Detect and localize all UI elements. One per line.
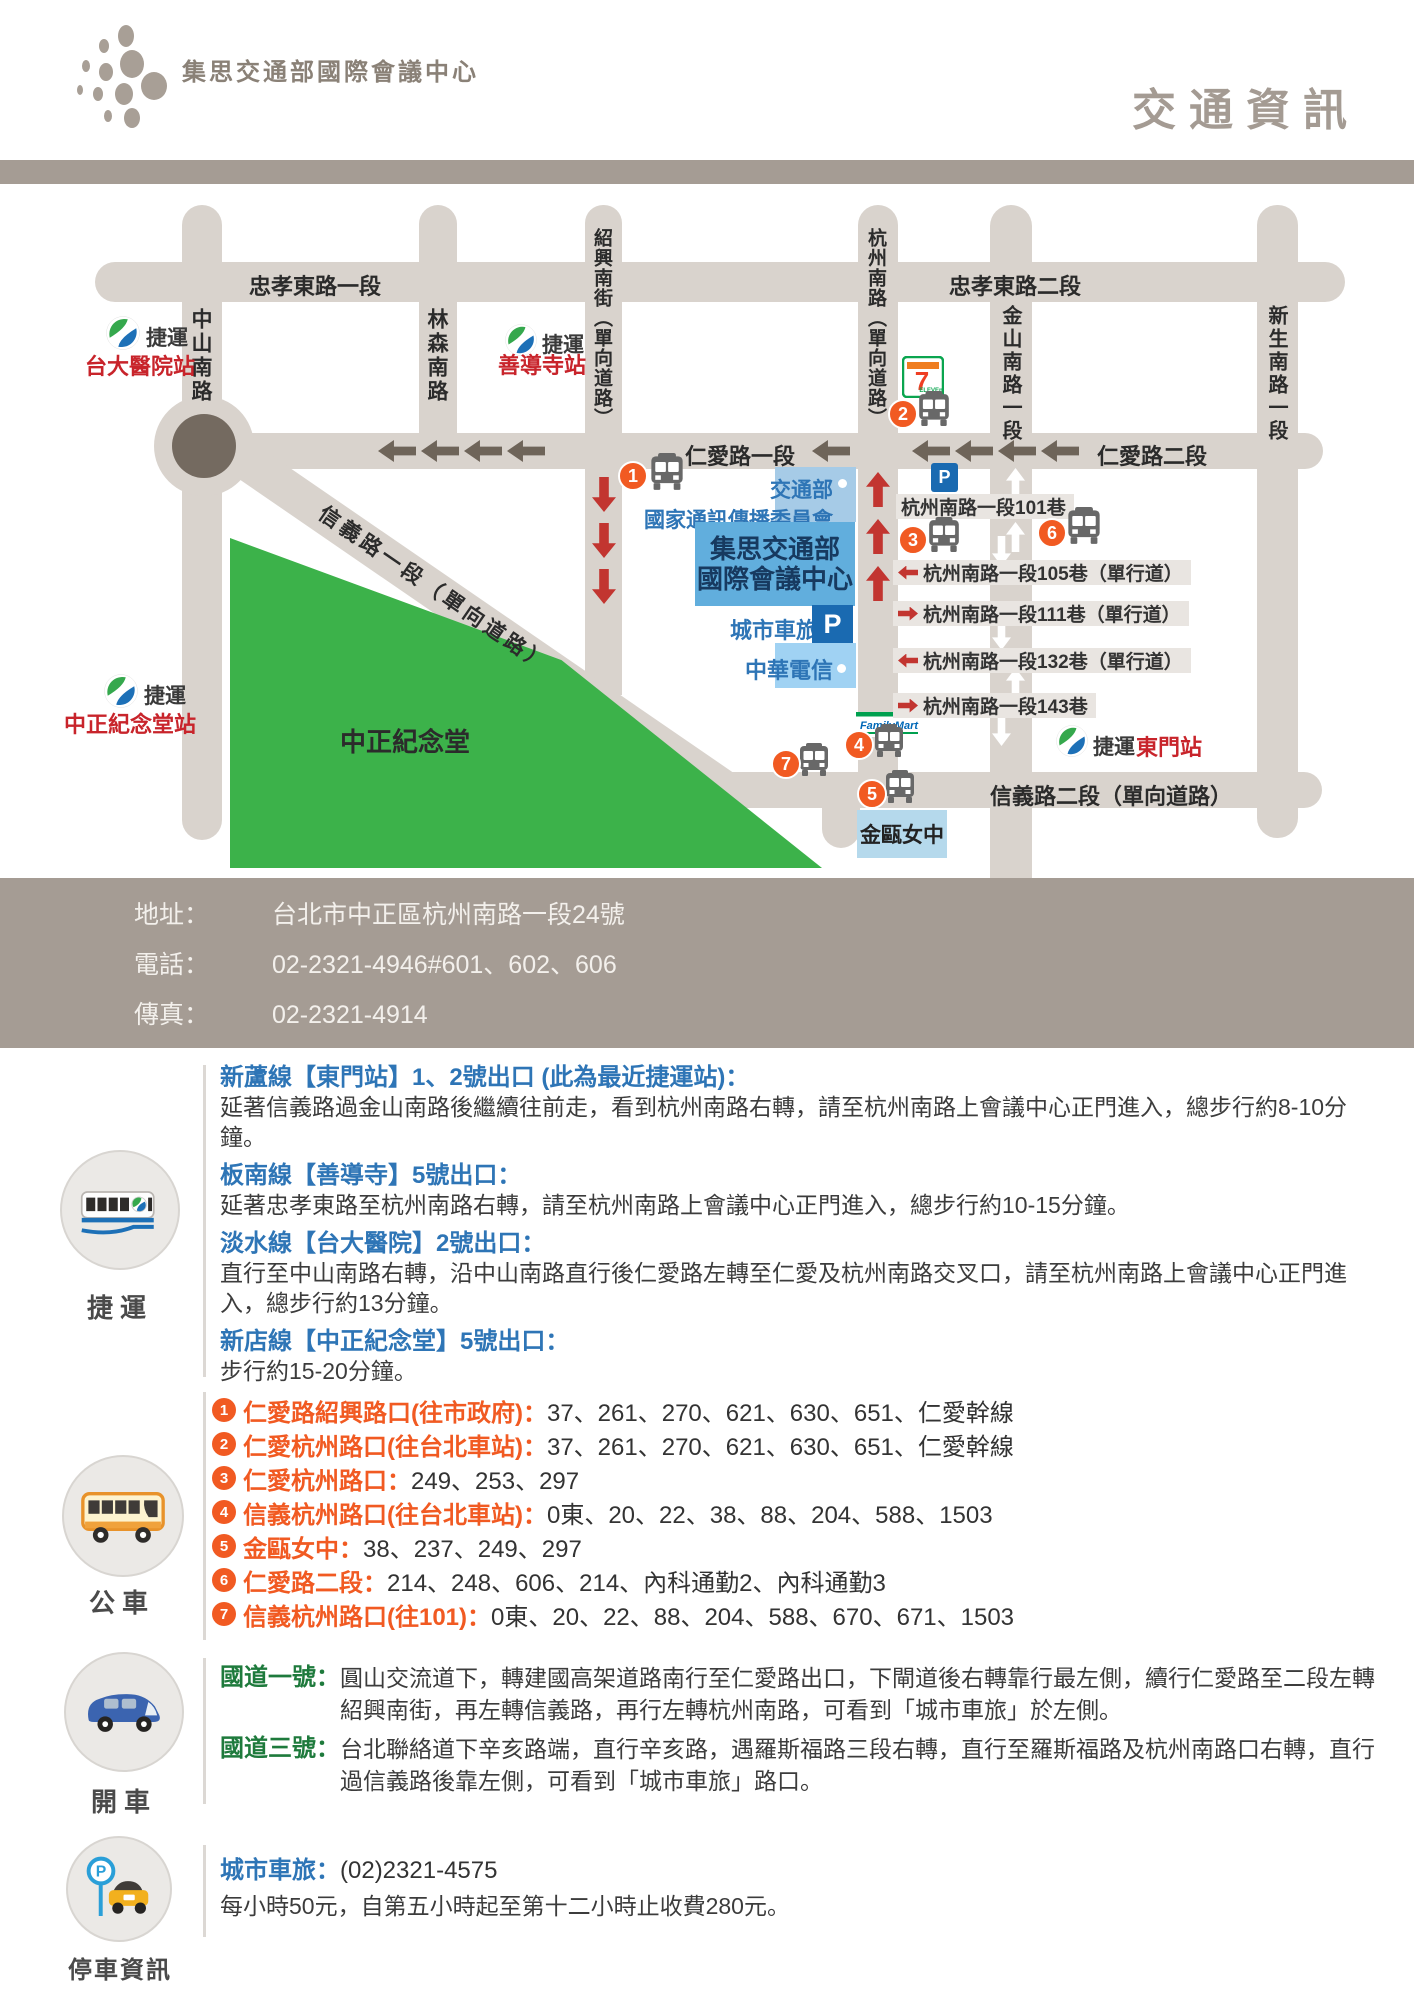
bus-section-icon	[62, 1455, 184, 1577]
yellow-bus-icon	[80, 1487, 166, 1545]
roundabout-center	[172, 414, 236, 478]
bus-route-lines: 0東、20、22、38、88、204、588、1503	[547, 1495, 993, 1530]
bus-stop-7-badge: 7	[771, 749, 801, 779]
bus-icon	[648, 453, 686, 491]
bus-stop-name: 仁愛路二段：	[243, 1563, 387, 1598]
parking-rate-info: 每小時50元，自第五小時起至第十二小時止收費280元。	[220, 1890, 1380, 1922]
bus-icon	[883, 770, 917, 804]
road-label-zhongxiao2: 忠孝東路二段	[905, 269, 1125, 301]
bus-icon	[916, 391, 952, 427]
bus-stop-number-badge: 6	[212, 1568, 236, 1592]
section-divider	[203, 1845, 206, 1937]
bus-route-lines: 249、253、297	[411, 1461, 579, 1496]
bus-stop-name: 仁愛杭州路口：	[243, 1461, 411, 1496]
bus-stop-3-badge: 3	[898, 525, 928, 555]
mrt-line-body: 直行至中山南路右轉，沿中山南路直行後仁愛路左轉至仁愛及杭州南路交叉口，請至杭州南…	[220, 1258, 1380, 1318]
left-arrow-icon	[898, 654, 918, 668]
bus-stop-1-badge: 1	[618, 461, 648, 491]
bus-route-row: 5 金甌女中： 38、237、249、297	[212, 1529, 1392, 1563]
road-label-xinyi2: 信義路二段（單向道路）	[990, 779, 1232, 811]
gis-center-block: 集思交通部 國際會議中心	[695, 522, 855, 606]
road-hangzhou-south	[822, 790, 860, 848]
metro-logo-icon	[106, 316, 140, 350]
contact-rows: 地址： 台北市中正區杭州南路一段24號 電話： 02-2321-4946#601…	[134, 890, 625, 1040]
lane-105-label: 杭州南路一段105巷（單行道）	[923, 559, 1183, 586]
bus-stop-number-badge: 1	[212, 1398, 236, 1422]
bus-route-row: 4 信義杭州路口(往台北車站)： 0東、20、22、38、88、204、588、…	[212, 1495, 1392, 1529]
lane-111-label: 杭州南路一段111巷（單行道）	[923, 600, 1181, 627]
bus-route-lines: 214、248、606、214、內科通勤2、內科通勤3	[387, 1563, 886, 1598]
drive-section-icon	[64, 1652, 184, 1772]
road-label-hangzhou: 杭州南路（單向道路）	[866, 228, 885, 428]
dongmen-metro: 捷運	[1093, 731, 1135, 761]
shandao-name: 善導寺站	[492, 348, 592, 380]
bus-stop-4-badge: 4	[844, 730, 874, 760]
traffic-info-page: 集思交通部國際會議中心 交通資訊 中正紀念堂 忠孝東路一段 忠孝東路二段 仁愛路…	[0, 0, 1414, 2000]
bus-route-row: 3 仁愛杭州路口： 249、253、297	[212, 1461, 1392, 1495]
contact-value: 台北市中正區杭州南路一段24號	[272, 890, 625, 940]
road-label-linsen: 林森南路	[426, 308, 447, 404]
road-label-jinshan: 金山南路一段	[1000, 305, 1020, 443]
street-map: 中正紀念堂 忠孝東路一段 忠孝東路二段 仁愛路一段 仁愛路二段 信義路二段（單向…	[0, 0, 1414, 878]
lane-111: 杭州南路一段111巷（單行道）	[893, 601, 1189, 626]
drive-direction-item: 國道一號： 圓山交流道下，轉建國高架道路南行至仁愛路出口，下閘道後右轉靠行最左側…	[220, 1662, 1385, 1726]
bus-stop-number-badge: 2	[212, 1432, 236, 1456]
jinou-block: 金甌女中	[857, 810, 947, 858]
bus-route-lines: 0東、20、22、88、204、588、670、671、1503	[491, 1597, 1014, 1632]
mrt-direction-item: 淡水線【台大醫院】2號出口： 直行至中山南路右轉，沿中山南路直行後仁愛路左轉至仁…	[220, 1229, 1380, 1318]
lane-101-label: 杭州南路一段101巷	[901, 493, 1066, 520]
right-arrow-icon	[898, 699, 918, 713]
contact-label: 地址：	[134, 890, 226, 940]
bus-icon	[797, 743, 831, 777]
mrt-line-heading: 淡水線【台大醫院】2號出口：	[220, 1229, 1380, 1258]
cks-memorial-label: 中正紀念堂	[320, 722, 490, 759]
lane-132: 杭州南路一段132巷（單行道）	[893, 648, 1191, 673]
contact-band: 地址： 台北市中正區杭州南路一段24號 電話： 02-2321-4946#601…	[0, 878, 1414, 1048]
left-arrow-icon	[898, 566, 918, 580]
parking-section-label: 停車資訊	[42, 1950, 198, 1985]
mrt-direction-item: 板南線【善導寺】5號出口： 延著忠孝東路至杭州南路右轉，請至杭州南路上會議中心正…	[220, 1161, 1380, 1220]
bus-route-lines: 37、261、270、621、630、651、仁愛幹線	[547, 1393, 1014, 1428]
highway-label: 國道一號：	[220, 1662, 340, 1726]
mrt-directions: 新蘆線【東門站】1、2號出口 (此為最近捷運站)： 延著信義路過金山南路後繼續往…	[220, 1063, 1380, 1395]
mrt-line-heading: 新蘆線【東門站】1、2號出口 (此為最近捷運站)：	[220, 1063, 1380, 1092]
drive-section-label: 開車	[54, 1782, 194, 1819]
dongmen-name: 東門站	[1136, 730, 1202, 762]
parking-phone: (02)2321-4575	[340, 1857, 497, 1884]
drive-direction-body: 圓山交流道下，轉建國高架道路南行至仁愛路出口，下閘道後右轉靠行最左側，續行仁愛路…	[340, 1662, 1385, 1726]
bus-stop-number-badge: 5	[212, 1534, 236, 1558]
contact-label: 電話：	[134, 940, 226, 990]
bus-route-row: 2 仁愛杭州路口(往台北車站)： 37、261、270、621、630、651、…	[212, 1427, 1392, 1461]
bus-stop-name: 信義杭州路口(往台北車站)：	[243, 1495, 547, 1530]
drive-directions: 國道一號： 圓山交流道下，轉建國高架道路南行至仁愛路出口，下閘道後右轉靠行最左側…	[220, 1662, 1385, 1804]
drive-direction-item: 國道三號： 台北聯絡道下辛亥路端，直行辛亥路，遇羅斯福路三段右轉，直行至羅斯福路…	[220, 1733, 1385, 1797]
bus-icon	[926, 517, 962, 553]
bus-icon	[872, 724, 906, 758]
cks-station-metro: 捷運	[144, 680, 186, 710]
contact-row: 地址： 台北市中正區杭州南路一段24號	[134, 890, 625, 940]
cht-dot	[837, 664, 846, 673]
parking-p-block: P	[812, 605, 853, 643]
mrt-line-body: 延著忠孝東路至杭州南路右轉，請至杭州南路上會議中心正門進入，總步行約10-15分…	[220, 1190, 1380, 1220]
parking-operator-label: 城市車旅：	[220, 1857, 340, 1884]
bus-route-lines: 38、237、249、297	[363, 1529, 582, 1564]
lane-132-label: 杭州南路一段132巷（單行道）	[923, 647, 1183, 674]
bus-stop-5-badge: 5	[857, 779, 887, 809]
parking-section-icon: P	[66, 1836, 172, 1942]
bus-section-label: 公車	[52, 1583, 192, 1620]
parking-sign-car-icon: P	[83, 1855, 155, 1923]
mrt-section-label: 捷運	[50, 1288, 190, 1325]
parking-heading-row: 城市車旅：(02)2321-4575	[220, 1855, 497, 1887]
contact-value: 02-2321-4914	[272, 990, 428, 1040]
bus-stop-name: 信義杭州路口(往101)：	[243, 1597, 491, 1632]
drive-direction-body: 台北聯絡道下辛亥路端，直行辛亥路，遇羅斯福路三段右轉，直行至羅斯福路及杭州南路口…	[340, 1733, 1385, 1797]
mrt-line-heading: 板南線【善導寺】5號出口：	[220, 1161, 1380, 1190]
bus-stop-name: 仁愛杭州路口(往台北車站)：	[243, 1427, 547, 1462]
jinou-label: 金甌女中	[860, 819, 944, 849]
lane-101: 杭州南路一段101巷	[896, 494, 1074, 519]
mrt-direction-item: 新店線【中正紀念堂】5號出口： 步行約15-20分鐘。	[220, 1327, 1380, 1386]
contact-label: 傳真：	[134, 990, 226, 1040]
mrt-line-body: 延著信義路過金山南路後繼續往前走，看到杭州南路右轉，請至杭州南路上會議中心正門進…	[220, 1092, 1380, 1152]
bus-route-row: 1 仁愛路紹興路口(往市政府)： 37、261、270、621、630、651、…	[212, 1393, 1392, 1427]
contact-row: 電話： 02-2321-4946#601、602、606	[134, 940, 625, 990]
road-label-zhongxiao1: 忠孝東路一段	[205, 269, 425, 301]
small-parking-icon: P	[931, 463, 958, 492]
bus-stop-name: 仁愛路紹興路口(往市政府)：	[243, 1393, 547, 1428]
section-divider	[203, 1392, 206, 1640]
metro-logo-icon	[104, 674, 138, 708]
bus-route-row: 6 仁愛路二段： 214、248、606、214、內科通勤2、內科通勤3	[212, 1563, 1392, 1597]
ntu-hospital-metro: 捷運	[146, 322, 188, 352]
train-icon	[79, 1183, 161, 1237]
bus-stop-6-badge: 6	[1037, 518, 1067, 548]
bus-stop-number-badge: 4	[212, 1500, 236, 1524]
bus-stop-number-badge: 3	[212, 1466, 236, 1490]
lane-143: 杭州南路一段143巷	[893, 693, 1096, 718]
svg-text:P: P	[96, 1864, 107, 1881]
contact-value: 02-2321-4946#601、602、606	[272, 940, 617, 990]
right-arrow-icon	[898, 607, 918, 621]
bus-stop-2-badge: 2	[888, 399, 918, 429]
bus-route-lines: 37、261、270、621、630、651、仁愛幹線	[547, 1427, 1014, 1462]
road-label-xinsheng: 新生南路一段	[1266, 305, 1286, 443]
bus-icon	[1065, 507, 1103, 545]
cht-label: 中華電信	[700, 653, 833, 685]
lane-143-label: 杭州南路一段143巷	[923, 692, 1088, 719]
bus-stop-number-badge: 7	[212, 1602, 236, 1626]
gis-center-line2: 國際會議中心	[697, 564, 853, 594]
cks-station-name: 中正紀念堂站	[56, 707, 204, 739]
mrt-line-body: 步行約15-20分鐘。	[220, 1356, 1380, 1386]
gis-center-line1: 集思交通部	[710, 534, 840, 564]
bus-stop-name: 金甌女中：	[243, 1529, 363, 1564]
bus-route-row: 7 信義杭州路口(往101)： 0東、20、22、88、204、588、670、…	[212, 1597, 1392, 1631]
highway-label: 國道三號：	[220, 1733, 340, 1797]
metro-logo-icon	[1056, 725, 1088, 757]
road-label-shaoxing: 紹興南街（單向道路）	[592, 228, 611, 428]
mrt-line-heading: 新店線【中正紀念堂】5號出口：	[220, 1327, 1380, 1356]
lane-105: 杭州南路一段105巷（單行道）	[893, 560, 1191, 585]
van-icon	[82, 1685, 166, 1739]
contact-row: 傳真： 02-2321-4914	[134, 990, 625, 1040]
mrt-direction-item: 新蘆線【東門站】1、2號出口 (此為最近捷運站)： 延著信義路過金山南路後繼續往…	[220, 1063, 1380, 1152]
section-divider	[203, 1658, 206, 1804]
ntu-hospital-name: 台大醫院站	[72, 349, 208, 381]
ncc-dot	[838, 479, 847, 488]
mrt-section-icon	[60, 1150, 180, 1270]
section-divider	[203, 1065, 206, 1377]
bus-routes: 1 仁愛路紹興路口(往市政府)： 37、261、270、621、630、651、…	[212, 1393, 1392, 1631]
city-parking-label: 城市車旅	[730, 613, 818, 645]
